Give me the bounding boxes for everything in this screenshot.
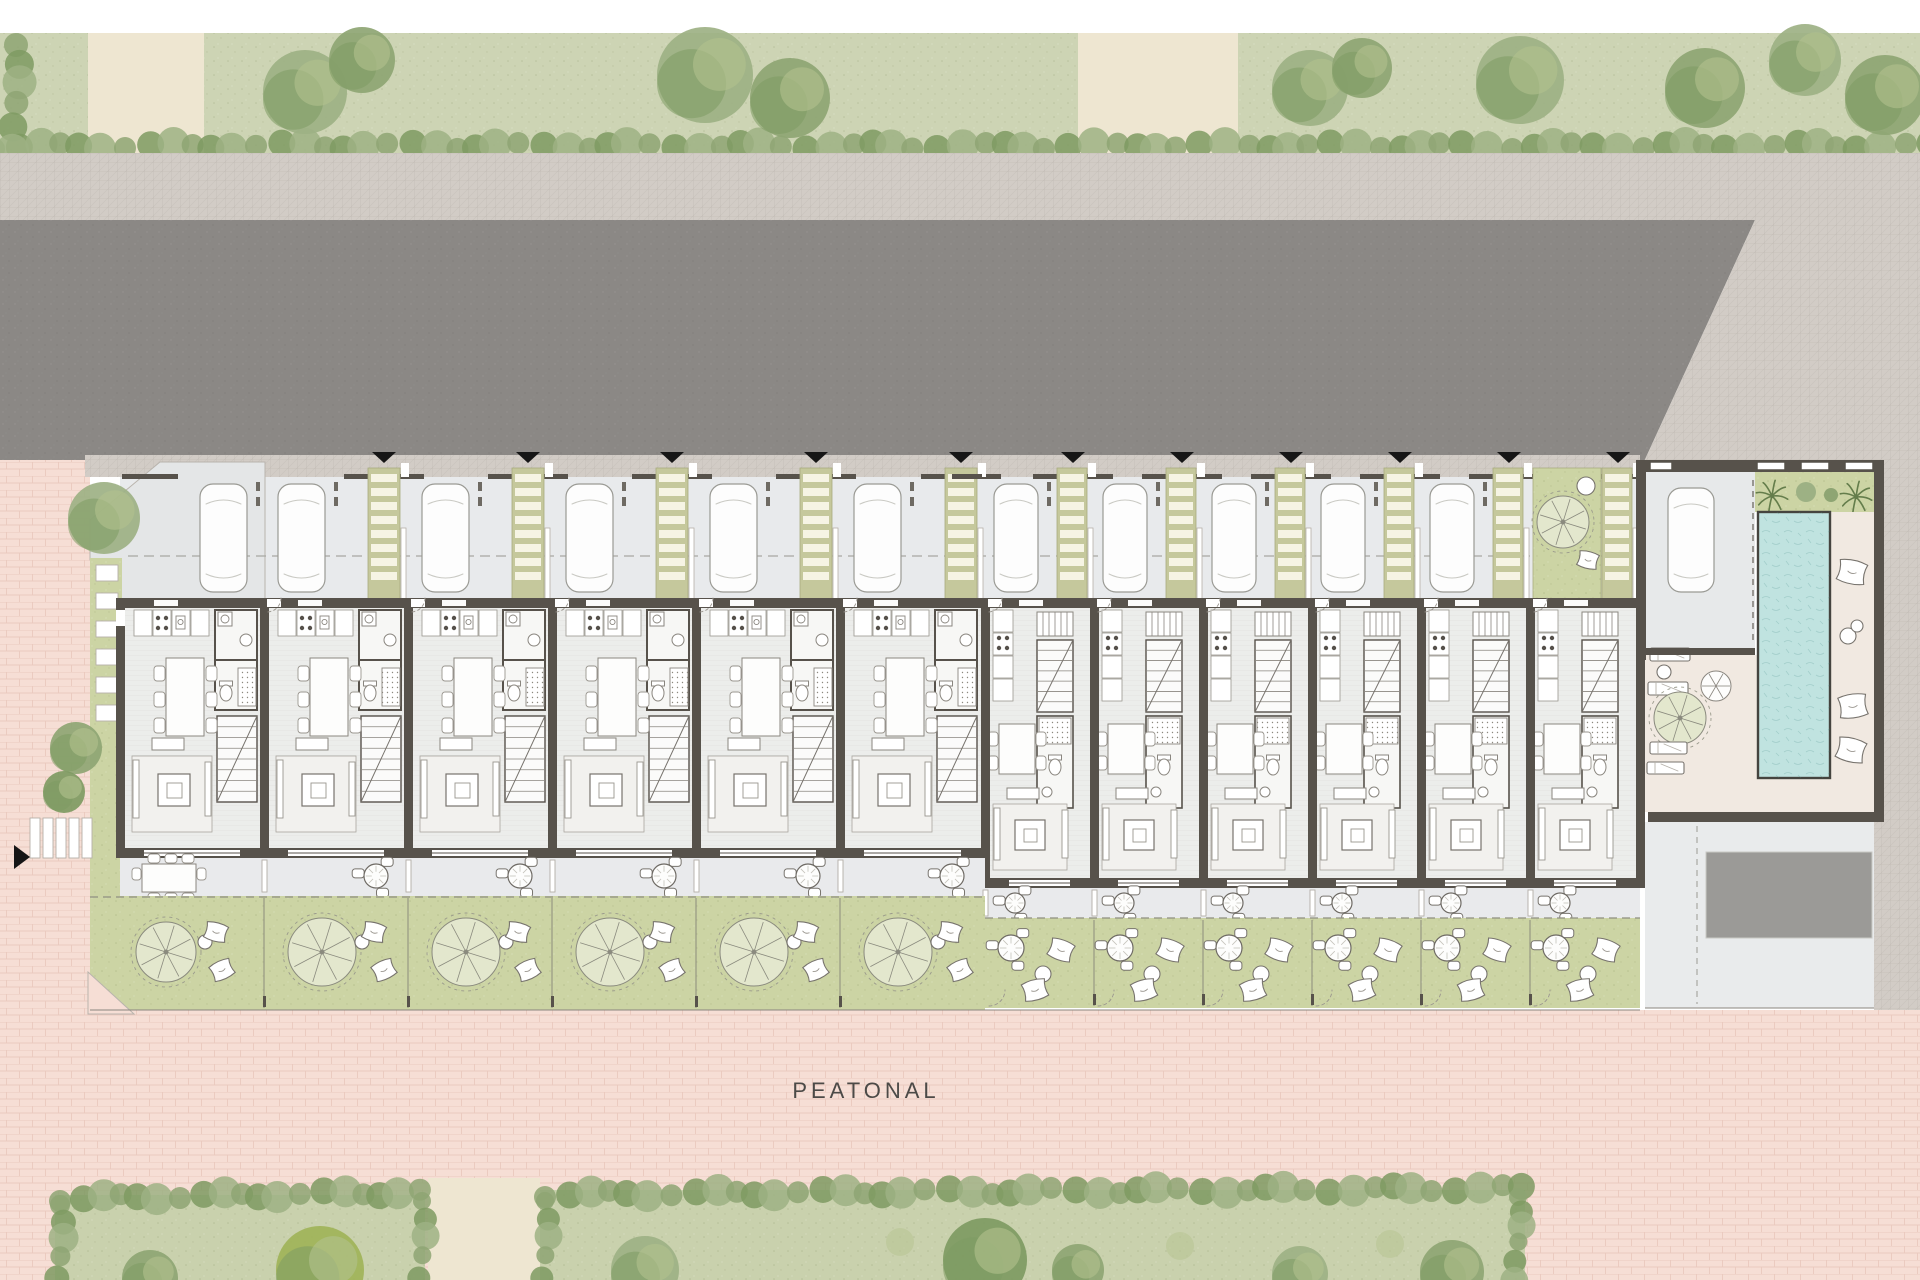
stairs bbox=[937, 716, 977, 802]
unit-12 bbox=[1526, 598, 1645, 888]
pergola-strip bbox=[945, 468, 977, 600]
pergola-strip bbox=[1493, 468, 1523, 600]
site-plan-page: PEATONAL bbox=[0, 0, 1920, 1280]
stairs bbox=[1255, 640, 1291, 712]
parked-car-icon bbox=[200, 484, 247, 592]
pergola-strip bbox=[1166, 468, 1196, 600]
south-hedge-parcels bbox=[44, 1171, 1535, 1280]
tree-icon bbox=[1476, 36, 1564, 124]
parked-car-icon bbox=[1668, 488, 1714, 592]
dining-table bbox=[874, 658, 937, 736]
toilet-icon bbox=[1376, 755, 1389, 775]
bathroom bbox=[935, 610, 977, 710]
parked-car-icon bbox=[566, 484, 613, 592]
parked-car-icon bbox=[278, 484, 325, 592]
unit-10 bbox=[1308, 598, 1421, 888]
tree-icon bbox=[50, 722, 102, 774]
toilet-icon bbox=[652, 681, 665, 701]
peatonal-label: PEATONAL bbox=[792, 1078, 939, 1103]
stairs bbox=[1364, 640, 1400, 712]
bathroom bbox=[503, 610, 545, 710]
unit-01 bbox=[116, 598, 264, 858]
stairs bbox=[1037, 640, 1073, 712]
bathroom bbox=[791, 610, 833, 710]
stairs bbox=[1582, 640, 1618, 712]
pergola-strip bbox=[368, 468, 400, 600]
terraces-right bbox=[983, 886, 1640, 922]
stairs bbox=[1146, 640, 1182, 712]
unit-11 bbox=[1417, 598, 1530, 888]
gardens-left bbox=[88, 896, 985, 1014]
sun-lounger-icon bbox=[1650, 742, 1687, 754]
stairs bbox=[793, 716, 833, 802]
terraces-left bbox=[120, 854, 985, 902]
toilet-icon bbox=[1049, 755, 1062, 775]
tree-icon bbox=[43, 771, 85, 813]
pergola-strip bbox=[1384, 468, 1414, 600]
parked-car-icon bbox=[1103, 484, 1147, 592]
toilet-icon bbox=[1158, 755, 1171, 775]
unit-03 bbox=[404, 598, 552, 858]
stairs bbox=[1473, 640, 1509, 712]
parked-car-icon bbox=[994, 484, 1038, 592]
toilet-icon bbox=[364, 681, 377, 701]
bathroom bbox=[647, 610, 689, 710]
unit-09 bbox=[1199, 598, 1312, 888]
site-plan-drawing: PEATONAL bbox=[0, 0, 1920, 1280]
unit-02 bbox=[260, 598, 408, 858]
wardrobe bbox=[1582, 612, 1618, 636]
sidewalk-upper bbox=[0, 153, 1920, 220]
parked-car-icon bbox=[1212, 484, 1256, 592]
toilet-icon bbox=[1594, 755, 1607, 775]
toilet-icon bbox=[508, 681, 521, 701]
unit-06 bbox=[836, 598, 985, 858]
parked-car-icon bbox=[1321, 484, 1365, 592]
pergola-strip bbox=[1057, 468, 1087, 600]
toilet-icon bbox=[1267, 755, 1280, 775]
toilet-icon bbox=[940, 681, 953, 701]
amenity-entry-court bbox=[1645, 822, 1874, 1008]
tree-icon bbox=[657, 27, 753, 123]
toilet-icon bbox=[796, 681, 809, 701]
dining-table bbox=[586, 658, 649, 736]
pergola-strip bbox=[800, 468, 832, 600]
unit-07 bbox=[981, 598, 1094, 888]
parked-car-icon bbox=[422, 484, 469, 592]
parked-car-icon bbox=[854, 484, 901, 592]
unit-04 bbox=[548, 598, 696, 858]
tree-icon bbox=[1332, 38, 1392, 98]
unit-05 bbox=[692, 598, 840, 858]
wardrobe bbox=[1146, 612, 1182, 636]
parked-car-icon bbox=[710, 484, 757, 592]
bathroom bbox=[215, 610, 257, 710]
tree-icon bbox=[1665, 48, 1745, 128]
pergola-strip bbox=[512, 468, 544, 600]
wardrobe bbox=[1473, 612, 1509, 636]
dining-table bbox=[154, 658, 217, 736]
stairs bbox=[361, 716, 401, 802]
gardens-right bbox=[985, 918, 1640, 1008]
wardrobe bbox=[1037, 612, 1073, 636]
stairs bbox=[217, 716, 257, 802]
unit-12-forecourt bbox=[1532, 468, 1601, 600]
road bbox=[0, 220, 1755, 466]
tree-icon bbox=[329, 27, 395, 93]
dining-table bbox=[730, 658, 793, 736]
tree-icon bbox=[1769, 24, 1841, 96]
wardrobe bbox=[1255, 612, 1291, 636]
stairs bbox=[505, 716, 545, 802]
amenity-pool-area bbox=[1636, 460, 1884, 822]
dining-table bbox=[442, 658, 505, 736]
unit-08 bbox=[1090, 598, 1203, 888]
dining-table bbox=[298, 658, 361, 736]
tree-icon bbox=[750, 58, 830, 138]
toilet-icon bbox=[220, 681, 233, 701]
lounge-pillow-icon bbox=[1837, 692, 1868, 719]
pergola-strip bbox=[656, 468, 688, 600]
pergola-strip bbox=[1275, 468, 1305, 600]
tree-icon bbox=[68, 482, 140, 554]
pergola-strip bbox=[1602, 468, 1632, 600]
toilet-icon bbox=[1485, 755, 1498, 775]
bathroom bbox=[359, 610, 401, 710]
parked-car-icon bbox=[1430, 484, 1474, 592]
stairs bbox=[649, 716, 689, 802]
spiral-feature-icon bbox=[1701, 671, 1731, 701]
sun-lounger-icon bbox=[1647, 762, 1684, 774]
wardrobe bbox=[1364, 612, 1400, 636]
